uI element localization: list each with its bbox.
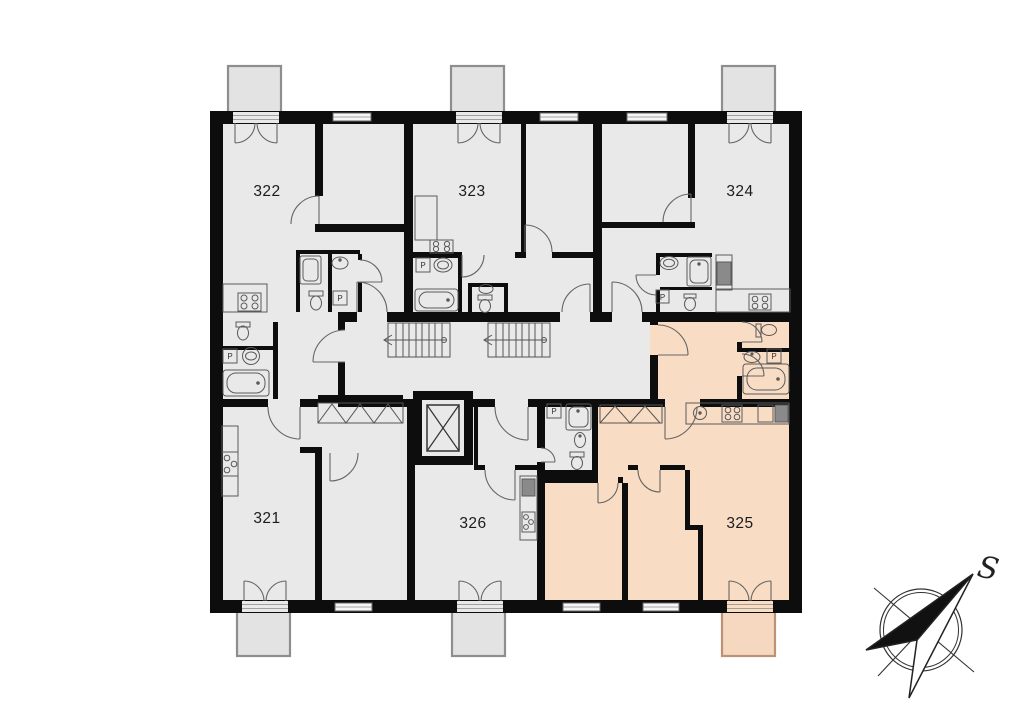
floor-plan-page: P P P P P P 322 323 324 321 326 325 [0, 0, 1024, 724]
apartment-label-323[interactable]: 323 [458, 183, 485, 200]
washer-label-325: P [771, 352, 776, 361]
apartment-label-325[interactable]: 325 [726, 515, 753, 532]
apartment-label-322[interactable]: 322 [253, 183, 280, 200]
balcony-326 [452, 606, 505, 656]
balcony-325 [722, 606, 775, 656]
apartment-unit-322[interactable]: 322 [253, 183, 280, 200]
outer-wall-right [789, 111, 802, 613]
washer-label-326: P [551, 407, 556, 416]
apartment-label-321[interactable]: 321 [253, 510, 280, 527]
apartment-label-324[interactable]: 324 [726, 183, 753, 200]
washer-label-321: P [227, 352, 232, 361]
apartment-unit-321[interactable]: 321 [253, 510, 280, 527]
washer-label-322: P [337, 294, 342, 303]
fridge-icon-324 [717, 262, 731, 285]
apartment-unit-326[interactable]: 326 [459, 515, 486, 532]
outer-wall-top [210, 111, 802, 124]
balcony-323 [451, 66, 504, 115]
floor-plan-drawing: P P P P P P 322 323 324 321 326 325 [0, 0, 1024, 724]
balcony-324 [722, 66, 775, 115]
outer-wall-bottom [210, 600, 802, 613]
apartment-unit-324[interactable]: 324 [726, 183, 753, 200]
fridge-icon-326 [522, 479, 535, 496]
apartment-unit-325[interactable]: 325 [726, 515, 753, 532]
compass-north-label: S [974, 549, 1001, 588]
apartment-unit-323[interactable]: 323 [458, 183, 485, 200]
elevator [413, 391, 473, 465]
compass-rose-icon: S [866, 549, 1002, 698]
balcony-321 [237, 606, 290, 656]
fridge-icon-325 [775, 405, 788, 422]
outer-wall-left [210, 111, 223, 613]
washer-label-323: P [420, 261, 425, 270]
balcony-322 [228, 66, 281, 115]
washer-label-324: P [660, 293, 665, 302]
apartment-label-326[interactable]: 326 [459, 515, 486, 532]
